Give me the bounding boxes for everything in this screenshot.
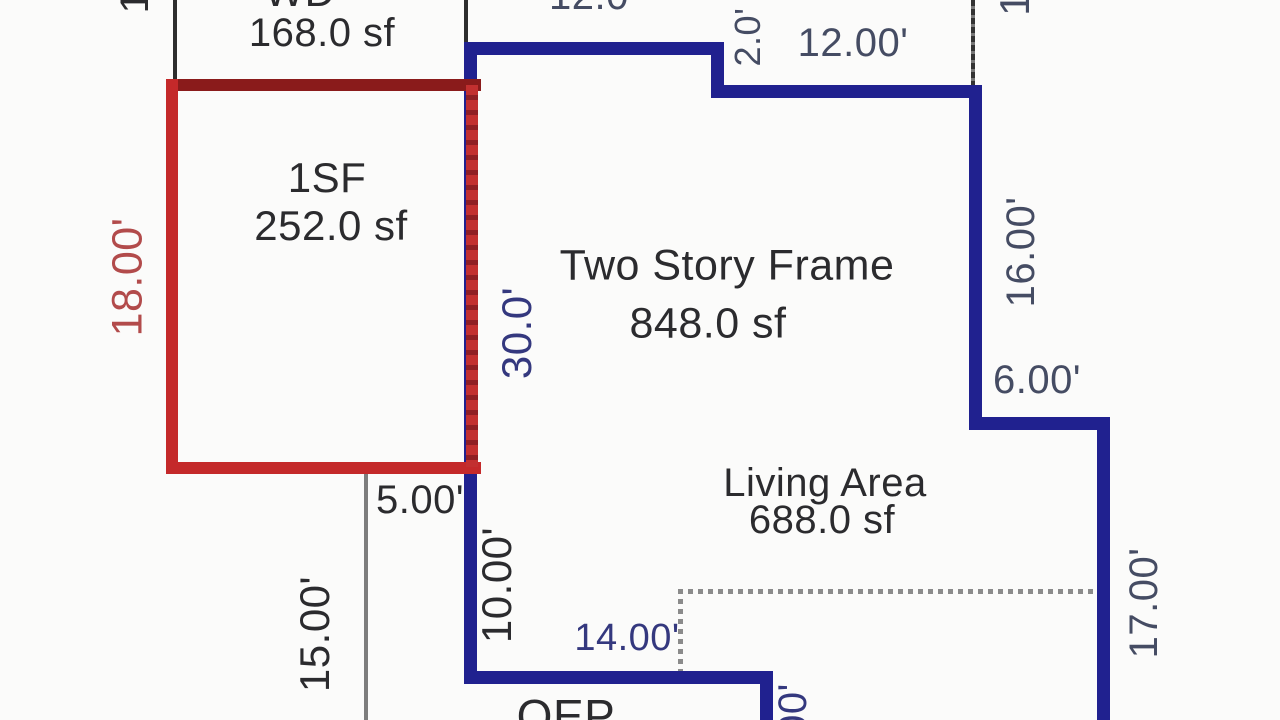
wd-left-wall-line [173, 0, 177, 83]
porch-left-extension-line [364, 470, 368, 720]
wd-room-area: 168.0 sf [249, 13, 395, 53]
red-addition-right-shared-border [466, 85, 478, 467]
dim-right-upper: 16.00' [1001, 197, 1041, 308]
dim-top-right-width: 12.00' [798, 23, 909, 63]
dim-top-right-partial: 1 [994, 0, 1036, 16]
dim-right-lower: 17.00' [1124, 548, 1164, 659]
dim-left-lower: 10.00' [476, 527, 518, 643]
one-story-room-label: 1SF [288, 157, 367, 199]
living-area-label: Living Area [723, 463, 926, 503]
dim-left-main-height: 30.0' [496, 287, 538, 379]
dim-bottom-width: 14.00' [574, 619, 679, 657]
dim-right-jog: 6.00' [993, 360, 1081, 400]
dim-bottom-left-offset: 5.00' [376, 480, 464, 520]
red-addition-top-border [166, 79, 481, 91]
top-right-extension-line [971, 0, 975, 90]
red-addition-bottom-border [166, 462, 481, 474]
wd-right-wall-line [464, 0, 468, 46]
dim-top-left-partial: 1 [115, 0, 155, 13]
dim-top-width: 12.0' [549, 0, 637, 16]
two-story-room-label: Two Story Frame [560, 245, 895, 288]
blue-outline-right-6ft-jog-edge [969, 417, 1110, 430]
blue-outline-top-left-edge [464, 42, 724, 55]
dim-left-porch-height: 15.00' [294, 576, 336, 692]
blue-outline-top-right-edge [711, 85, 982, 98]
blue-outline-right-16ft-edge [969, 85, 982, 430]
porch-room-label: OEP [517, 693, 616, 720]
two-story-room-area: 848.0 sf [630, 303, 787, 346]
floor-plan-sketch: WD 168.0 sf 1SF 252.0 sf Two Story Frame… [0, 0, 1280, 720]
dotted-line-horizontal [678, 589, 1100, 594]
dim-top-jog: 2.0' [730, 8, 766, 67]
blue-outline-bottom-14ft-edge [464, 671, 773, 684]
dim-left-addition-height: 18.00' [107, 218, 150, 337]
red-addition-left-border [166, 79, 178, 474]
dim-bottom-right-partial: 00' [773, 683, 813, 720]
one-story-room-area: 252.0 sf [254, 205, 407, 247]
living-area-size: 688.0 sf [749, 500, 895, 540]
blue-outline-right-17ft-edge [1097, 417, 1110, 720]
